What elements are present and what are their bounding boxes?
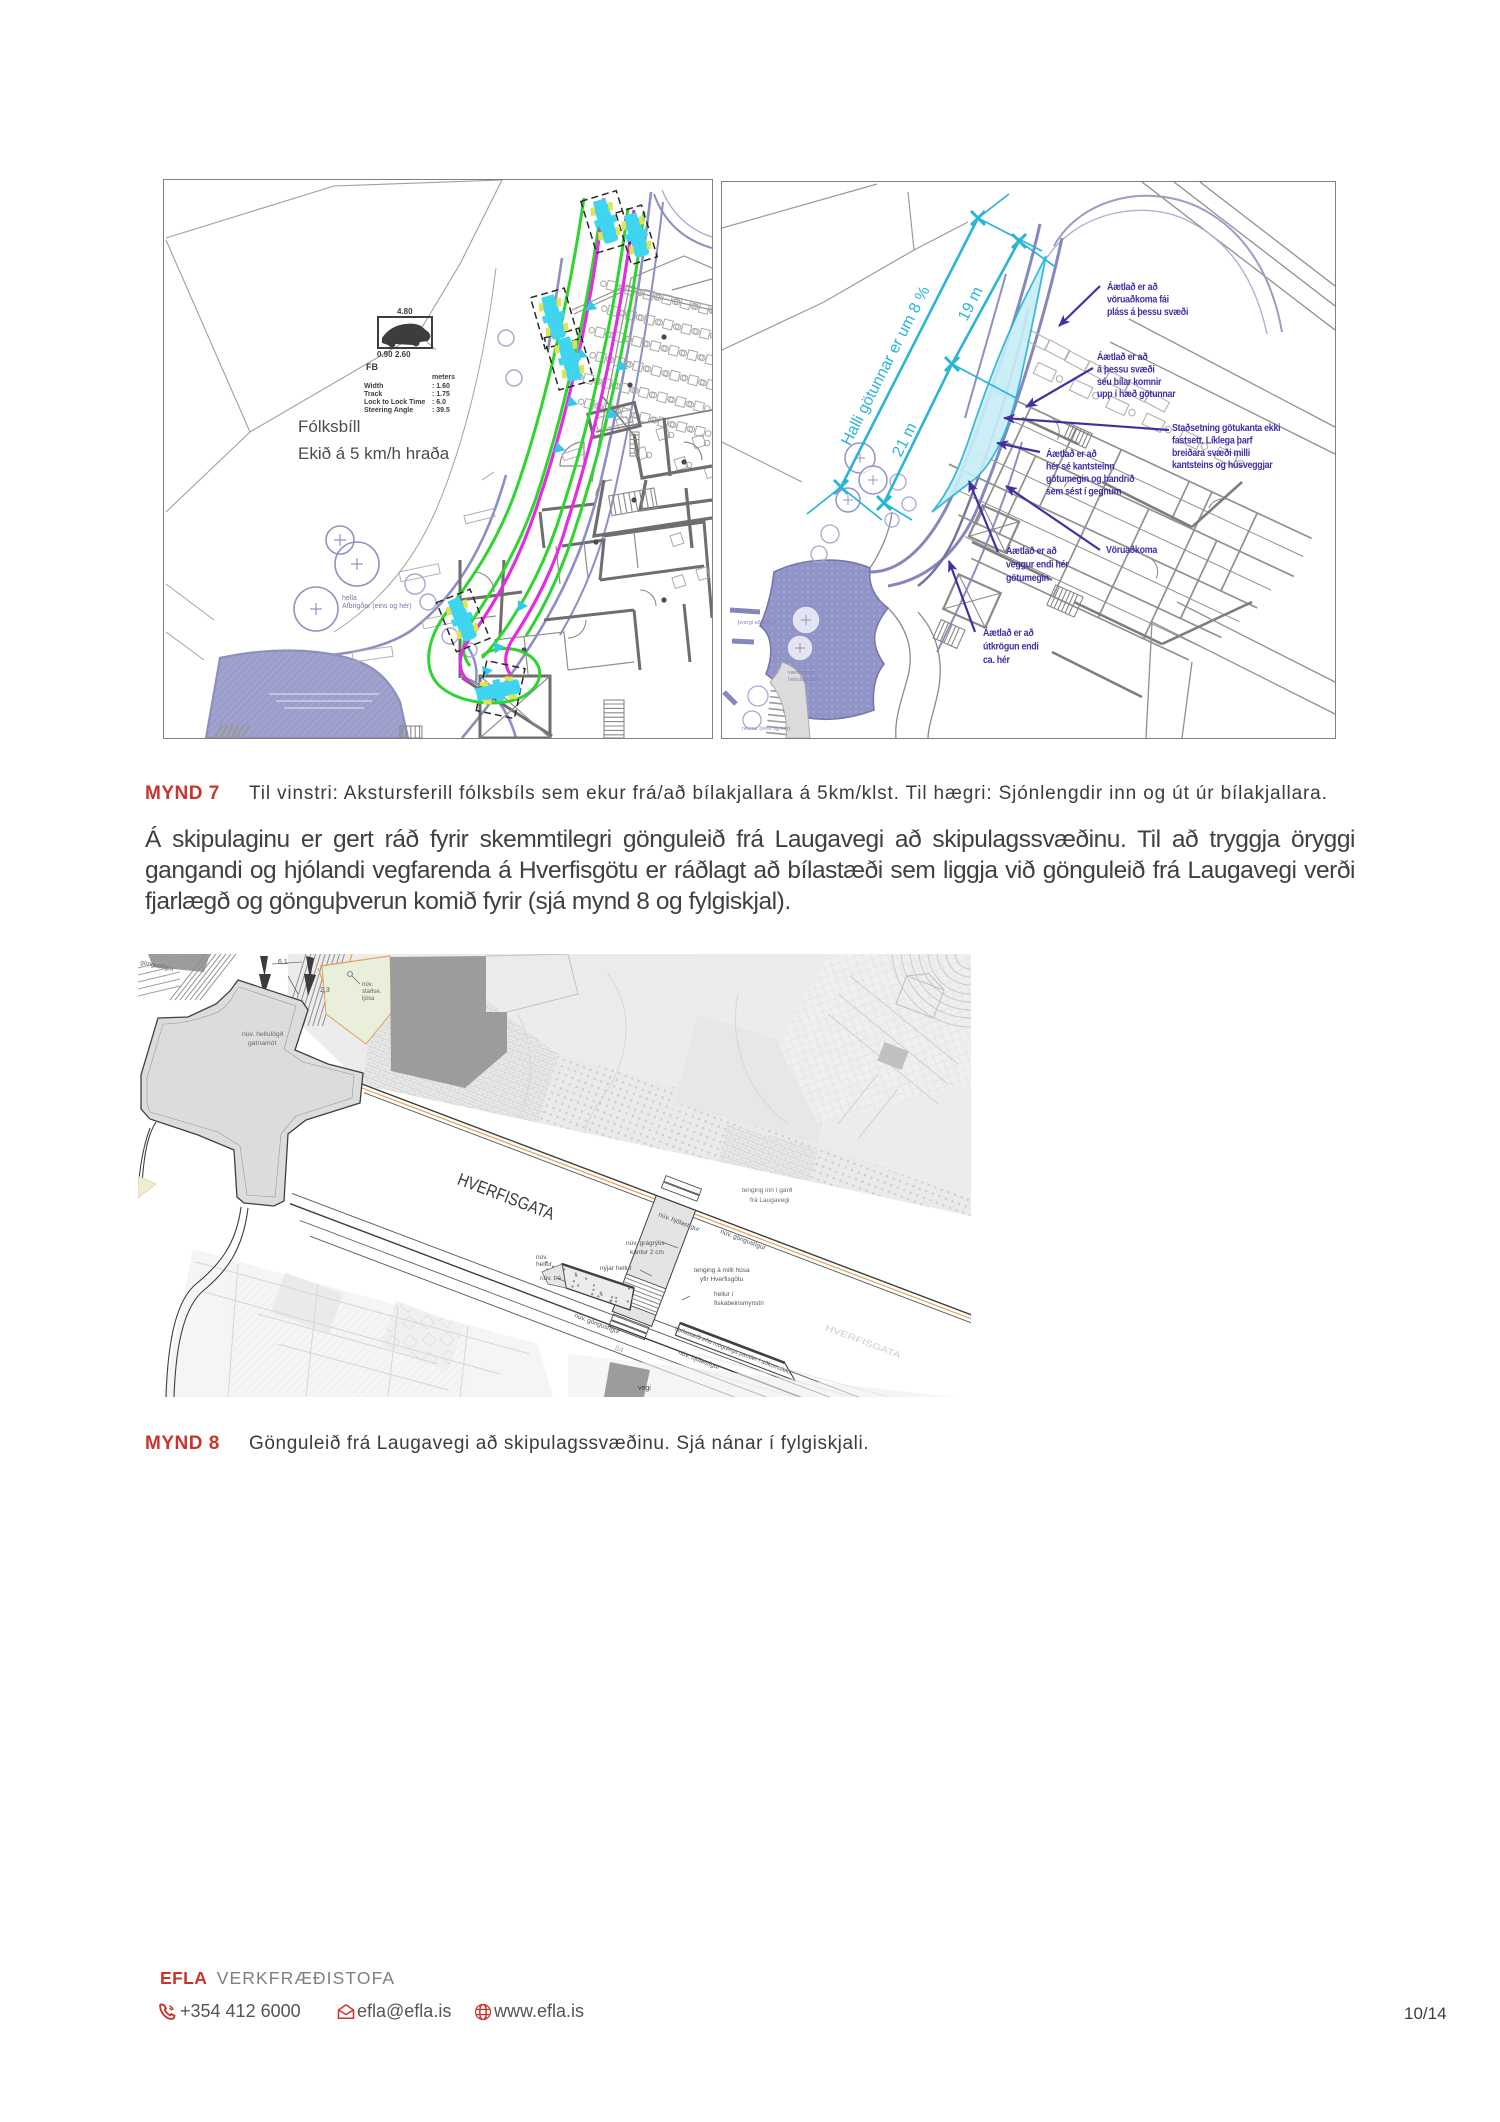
svg-text:staðse.: staðse.: [362, 988, 382, 995]
svg-text:tenging inn í garð: tenging inn í garð: [742, 1186, 793, 1194]
svg-text:tenging á milli húsa: tenging á milli húsa: [694, 1267, 750, 1274]
svg-text:HVERFISGATA: HVERFISGATA: [824, 1322, 903, 1360]
svg-text:Áætlað er að: Áætlað er að: [1107, 280, 1158, 293]
svg-text:núv. grágrýtis-: núv. grágrýtis-: [626, 1240, 667, 1247]
svg-text:Width: Width: [364, 383, 383, 390]
svg-text:kantur 2 cm: kantur 2 cm: [630, 1249, 664, 1256]
svg-text:Áætlað er að: Áætlað er að: [983, 626, 1034, 639]
svg-text:Staðsetning götukanta ekki: Staðsetning götukanta ekki: [1172, 422, 1280, 434]
svg-text:sem sést í gegnum: sem sést í gegnum: [1046, 486, 1121, 498]
svg-text:núv.: núv.: [536, 1254, 548, 1261]
svg-text:19 m: 19 m: [955, 284, 986, 323]
svg-text:hér sé kantsteinn: hér sé kantsteinn: [1046, 461, 1115, 473]
svg-text:ljósa: ljósa: [362, 996, 375, 1002]
svg-text:fastsett. Líklega þarf: fastsett. Líklega þarf: [1172, 435, 1253, 447]
svg-text:væntanleg: væntanleg: [788, 670, 814, 676]
svg-text:Track: Track: [364, 391, 382, 398]
svg-text:2.60: 2.60: [395, 350, 411, 359]
svg-text:séu bílar komnir: séu bílar komnir: [1097, 376, 1162, 388]
svg-text:þvergi aðkoma: þvergi aðkoma: [738, 619, 775, 626]
svg-text:2,3: 2,3: [320, 987, 330, 994]
svg-text:fiskabeinsmynstri: fiskabeinsmynstri: [714, 1300, 764, 1307]
svg-text:upp í hæð götunnar: upp í hæð götunnar: [1097, 389, 1176, 401]
svg-text:Áætlað er að: Áætlað er að: [1097, 350, 1148, 363]
svg-text:vöruaðkoma fái: vöruaðkoma fái: [1107, 294, 1169, 306]
svg-text:útkrögun endi: útkrögun endi: [983, 641, 1039, 653]
svg-text:frá Laugavegi: frá Laugavegi: [750, 1197, 789, 1204]
svg-text:: 1.75: : 1.75: [432, 391, 450, 398]
svg-text:hellur í: hellur í: [714, 1291, 734, 1298]
svg-text:yfir Hverfisgötu: yfir Hverfisgötu: [700, 1276, 744, 1283]
svg-text:0.90: 0.90: [377, 350, 393, 359]
svg-text:Halli götunnar er um 8 %: Halli götunnar er um 8 %: [838, 284, 933, 449]
svg-text:: 1.60: : 1.60: [432, 383, 450, 390]
svg-text:veggur endi hér: veggur endi hér: [1006, 559, 1069, 571]
svg-text:Lock to Lock Time: Lock to Lock Time: [364, 399, 425, 406]
svg-text:84: 84: [613, 1343, 625, 1355]
svg-text:breiðara svæði milli: breiðara svæði milli: [1172, 447, 1250, 459]
svg-text:nýjar hellur: nýjar hellur: [600, 1265, 633, 1272]
svg-text:Áætlað er að: Áætlað er að: [1006, 544, 1057, 557]
svg-text:: 39.5: : 39.5: [432, 407, 450, 414]
svg-text:: 6.0: : 6.0: [432, 399, 446, 406]
svg-text:HVERFISGATA: HVERFISGATA: [455, 1169, 558, 1224]
svg-text:Afbrigðar (eins og hér): Afbrigðar (eins og hér): [342, 602, 412, 610]
svg-text:Áætlað er að: Áætlað er að: [1046, 447, 1097, 460]
svg-text:gatnamót: gatnamót: [248, 1040, 276, 1047]
svg-text:vegi: vegi: [638, 1385, 651, 1392]
svg-text:götumegin: götumegin: [1006, 573, 1049, 585]
svg-text:6,1: 6,1: [278, 959, 288, 966]
svg-text:meters: meters: [432, 374, 455, 381]
svg-text:á þessu svæði: á þessu svæði: [1097, 364, 1155, 376]
svg-text:Vöruaðkoma: Vöruaðkoma: [1106, 544, 1158, 556]
svg-text:Steering Angle: Steering Angle: [364, 407, 413, 414]
svg-text:núv.: núv.: [362, 982, 373, 988]
svg-text:Ekið á 5 km/h hraða: Ekið á 5 km/h hraða: [298, 444, 450, 463]
svg-text:hellulagt gata: hellulagt gata: [788, 677, 822, 683]
svg-text:hella: hella: [342, 595, 357, 602]
svg-text:hellur: hellur: [536, 1261, 553, 1268]
svg-text:pláss á þessu svæði: pláss á þessu svæði: [1107, 306, 1188, 318]
svg-text:Fólksbíll: Fólksbíll: [298, 417, 360, 436]
svg-text:85: 85: [437, 1127, 460, 1149]
svg-text:núv. hellulögð: núv. hellulögð: [242, 1030, 284, 1038]
svg-text:kantsteins og húsveggjar: kantsteins og húsveggjar: [1172, 460, 1273, 472]
svg-text:4.80: 4.80: [397, 307, 413, 316]
svg-text:götumegin og handrið: götumegin og handrið: [1046, 473, 1135, 485]
svg-text:ca. hér: ca. hér: [983, 654, 1010, 666]
svg-text:FB: FB: [366, 362, 378, 372]
